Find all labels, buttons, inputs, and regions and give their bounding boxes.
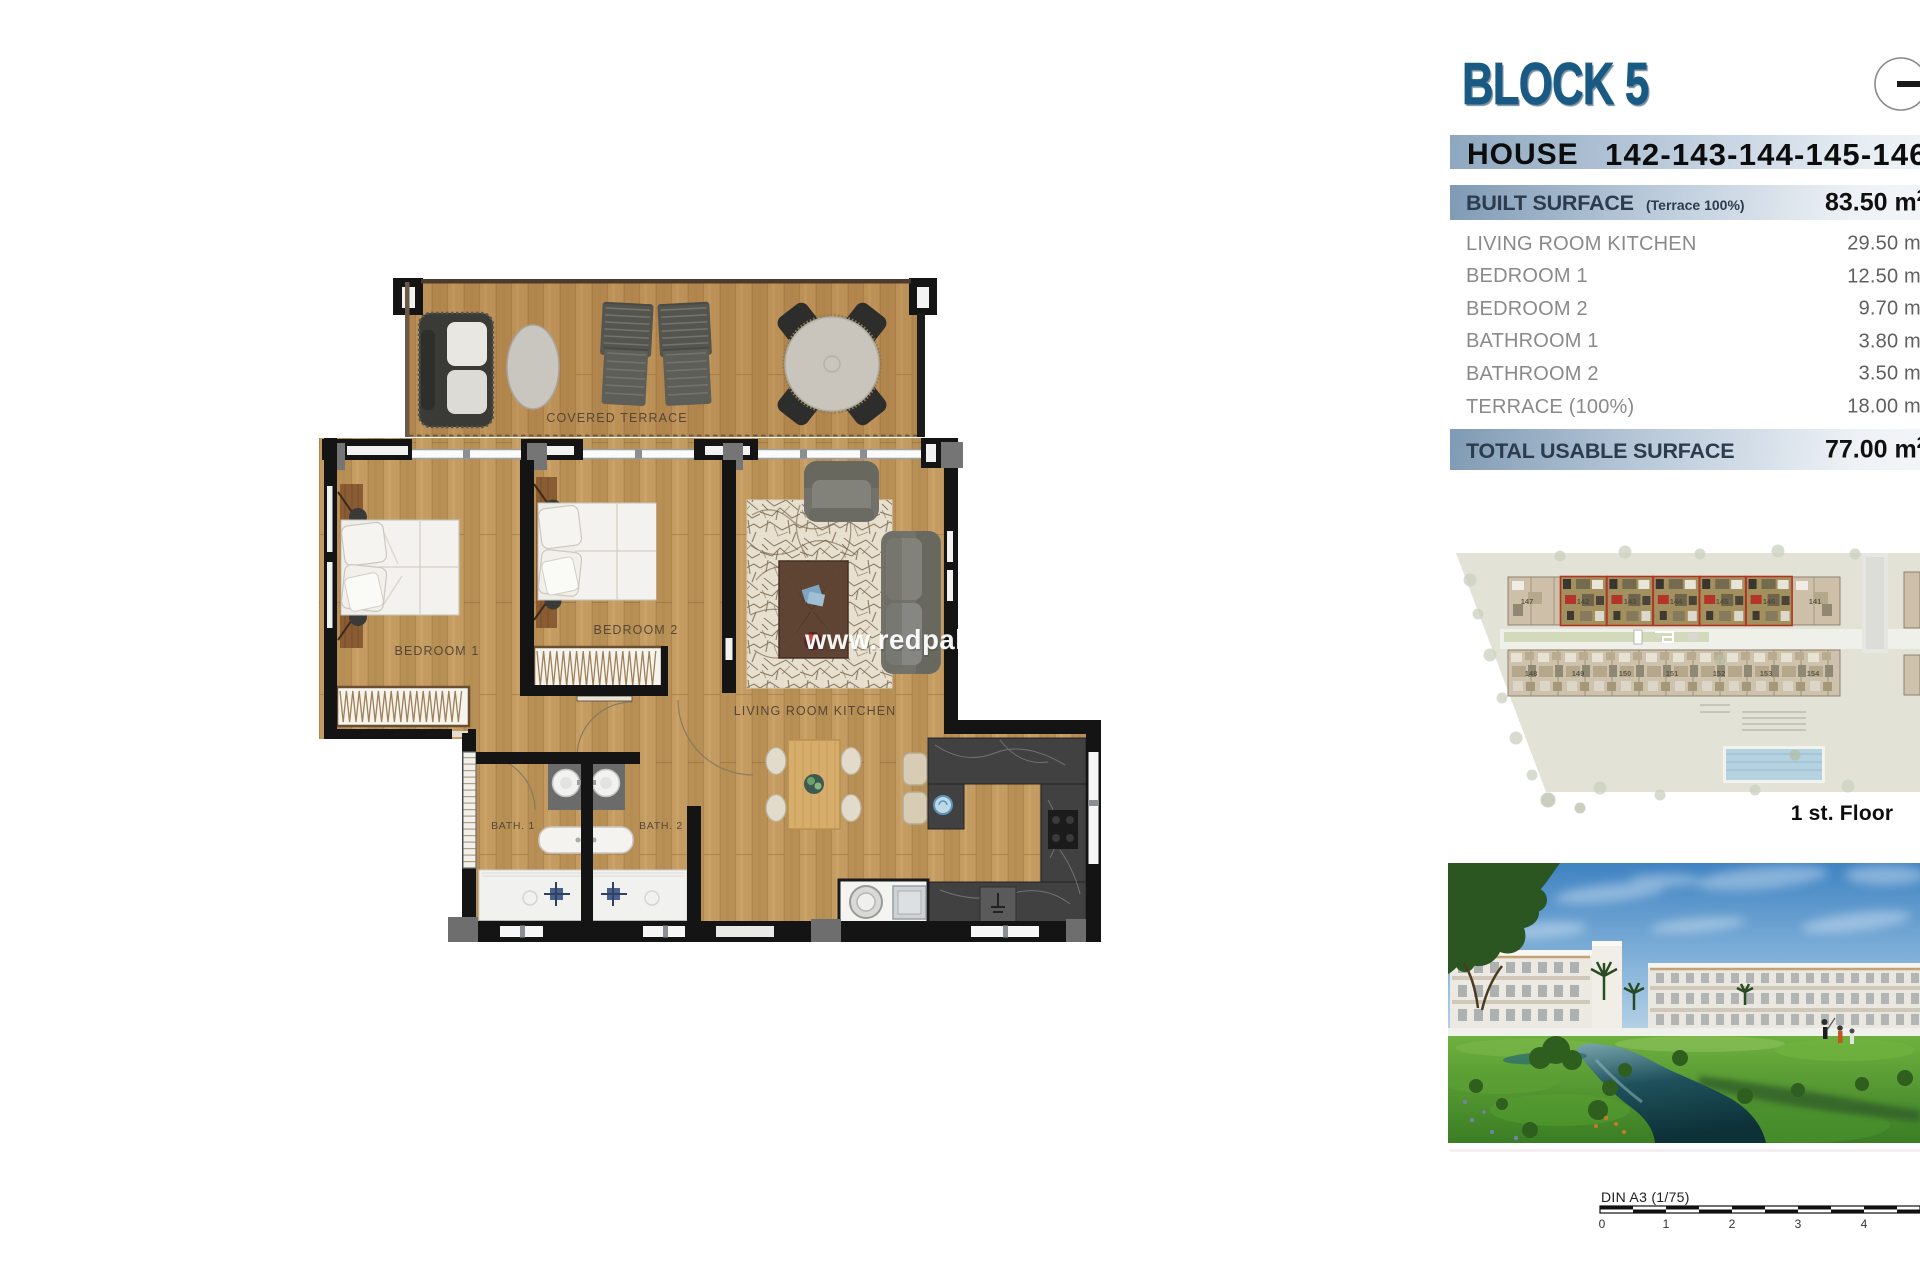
svg-text:DIN A3 (1/75): DIN A3 (1/75) — [1601, 1189, 1690, 1205]
svg-text:148: 148 — [1525, 669, 1538, 678]
svg-text:0: 0 — [1599, 1217, 1606, 1231]
svg-text:BEDROOM 1: BEDROOM 1 — [395, 644, 480, 658]
svg-text:149: 149 — [1572, 669, 1585, 678]
svg-text:151: 151 — [1666, 669, 1679, 678]
svg-text:152: 152 — [1713, 669, 1726, 678]
svg-text:4: 4 — [1861, 1217, 1868, 1231]
svg-text:154: 154 — [1807, 669, 1820, 678]
svg-text:144: 144 — [1670, 597, 1683, 606]
svg-text:BATH. 2: BATH. 2 — [639, 820, 683, 832]
svg-text:COVERED TERRACE: COVERED TERRACE — [546, 411, 687, 425]
svg-text:147: 147 — [1521, 597, 1534, 606]
svg-text:150: 150 — [1619, 669, 1632, 678]
svg-text:145: 145 — [1716, 597, 1729, 606]
svg-text:142: 142 — [1577, 597, 1590, 606]
svg-text:3: 3 — [1795, 1217, 1802, 1231]
svg-text:1: 1 — [1663, 1217, 1670, 1231]
svg-text:146: 146 — [1763, 597, 1776, 606]
svg-text:153: 153 — [1760, 669, 1773, 678]
svg-text:BATH. 1: BATH. 1 — [491, 820, 535, 832]
svg-text:1 st. Floor: 1 st. Floor — [1791, 802, 1894, 825]
svg-text:www.redpal: www.redpal — [804, 624, 963, 655]
svg-text:141: 141 — [1809, 597, 1822, 606]
svg-text:BEDROOM 2: BEDROOM 2 — [594, 623, 679, 637]
svg-text:2: 2 — [1729, 1217, 1736, 1231]
svg-text:143: 143 — [1624, 597, 1637, 606]
svg-text:LIVING ROOM KITCHEN: LIVING ROOM KITCHEN — [734, 704, 897, 718]
